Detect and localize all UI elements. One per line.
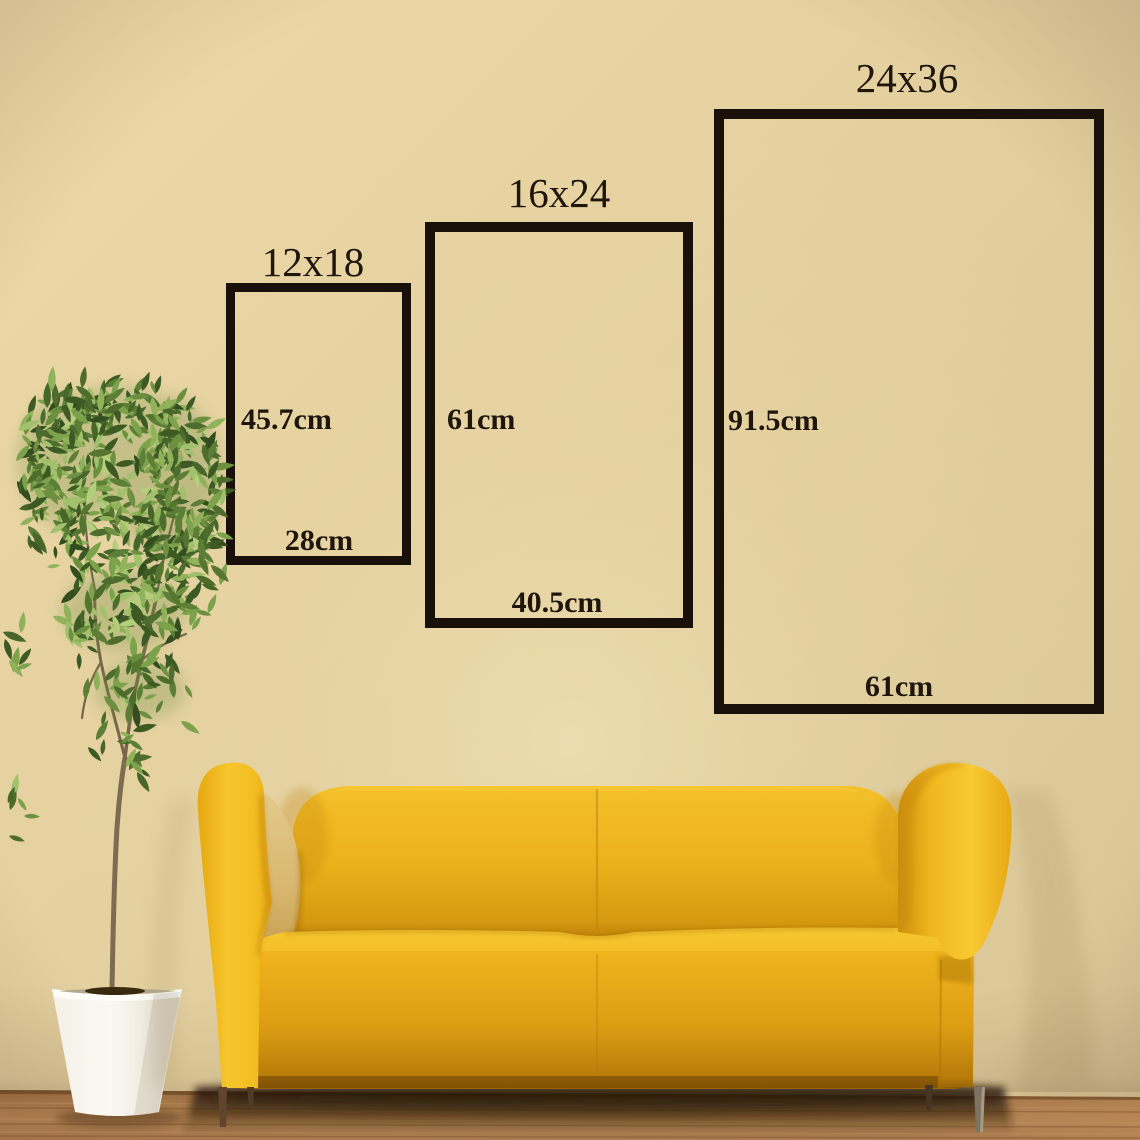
- svg-text:16x24: 16x24: [508, 170, 611, 216]
- svg-text:40.5cm: 40.5cm: [512, 586, 603, 619]
- svg-text:45.7cm: 45.7cm: [241, 403, 332, 436]
- svg-text:91.5cm: 91.5cm: [728, 404, 819, 437]
- svg-text:61cm: 61cm: [865, 670, 933, 703]
- svg-text:24x36: 24x36: [856, 55, 959, 101]
- svg-text:28cm: 28cm: [285, 524, 353, 557]
- svg-text:61cm: 61cm: [447, 403, 515, 436]
- svg-text:12x18: 12x18: [262, 239, 365, 285]
